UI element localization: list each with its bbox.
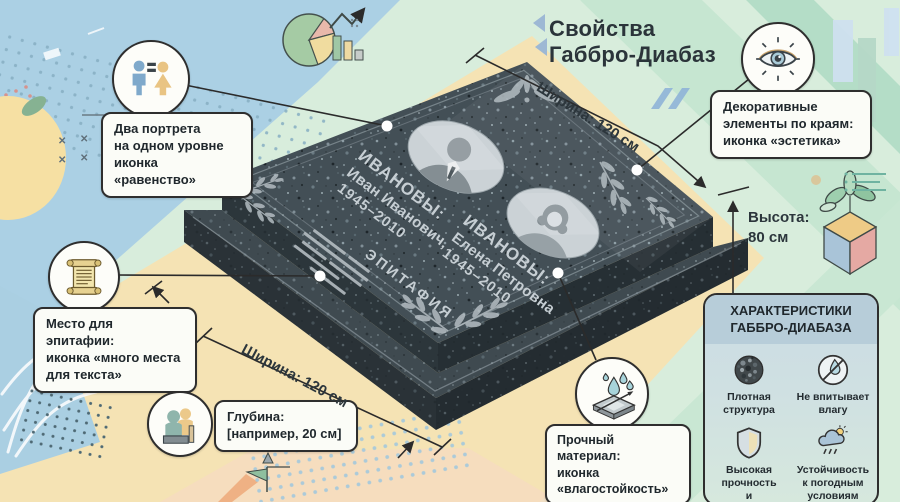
scroll-icon-badge xyxy=(48,241,120,313)
weather-resistance-icon xyxy=(814,424,852,462)
callout-decor: Декоративные элементы по краям: иконка «… xyxy=(710,90,872,159)
characteristics-panel: ХАРАКТЕРИСТИКИ ГАББРО-ДИАБАЗА Плотная ст… xyxy=(703,293,879,502)
panel-item-dense-structure: Плотная структура xyxy=(708,351,790,417)
dense-structure-icon xyxy=(730,351,768,389)
callout-material: Прочный материал: иконка «влагостойкость… xyxy=(545,424,691,502)
svg-text:✕: ✕ xyxy=(80,134,88,145)
title-line-2: Габбро-Диабаз xyxy=(549,42,716,68)
svg-text:✕: ✕ xyxy=(80,153,88,164)
man-woman-equality-icon xyxy=(125,53,177,105)
memorial-people-icon xyxy=(158,402,202,446)
eye-icon-badge xyxy=(741,22,815,96)
memorial-people-icon-badge xyxy=(147,391,213,457)
panel-grid: Плотная структура Не впитывает влагу Выс… xyxy=(705,344,877,502)
callout-portraits: Два портрета на одном уровне иконка «рав… xyxy=(101,112,253,198)
panel-item-label: Не впитывает влагу xyxy=(797,391,870,417)
panel-title: ХАРАКТЕРИСТИКИ ГАББРО-ДИАБАЗА xyxy=(705,295,877,344)
equality-icon-badge xyxy=(112,40,190,118)
scroll-icon xyxy=(61,254,107,300)
svg-text:✕: ✕ xyxy=(58,155,66,166)
water-drops-icon-badge xyxy=(575,357,649,431)
eye-icon xyxy=(753,34,803,84)
panel-item-label: Плотная структура xyxy=(723,391,775,417)
shield-icon xyxy=(730,424,768,462)
title-line-1: Свойства xyxy=(549,16,716,42)
height-label: Высота: 80 см xyxy=(748,208,809,249)
page-title: Свойства Габбро-Диабаз xyxy=(549,16,716,69)
connector-dot xyxy=(382,121,393,132)
infographic-canvas: ✕✕ ✕✕ xyxy=(0,0,900,502)
panel-item-strength: Высокая прочность и долговечность xyxy=(708,424,790,502)
connector-dot xyxy=(315,271,326,282)
water-drops-icon xyxy=(586,368,638,420)
connector-dot xyxy=(553,268,564,279)
connector-dot xyxy=(632,165,643,176)
panel-item-no-water: Не впитывает влагу xyxy=(792,351,874,417)
panel-item-label: Высокая прочность и долговечность xyxy=(708,464,790,502)
no-water-absorption-icon xyxy=(814,351,852,389)
callout-epitaph: Место для эпитафии: иконка «много места … xyxy=(33,307,197,393)
panel-item-weather: Устойчивость к погодным условиям xyxy=(792,424,874,502)
panel-item-label: Устойчивость к погодным условиям xyxy=(797,464,869,502)
svg-text:✕: ✕ xyxy=(58,136,66,147)
